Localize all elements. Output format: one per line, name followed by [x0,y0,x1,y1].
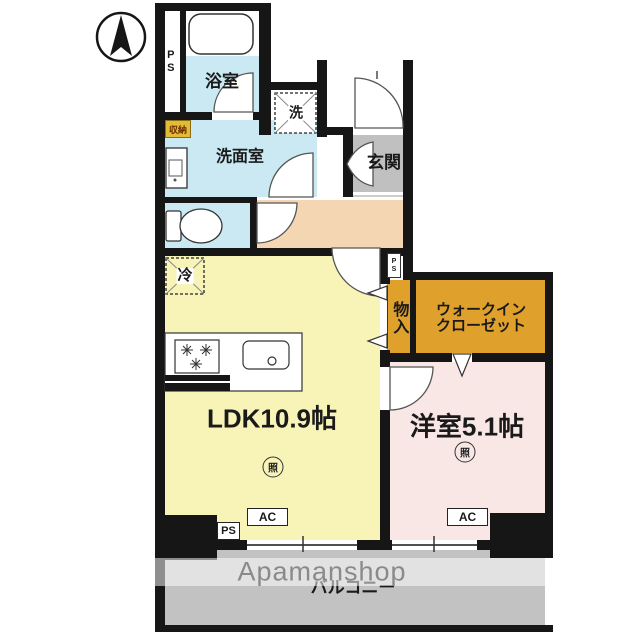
toilet [166,211,181,241]
north-arrow-icon [97,13,145,61]
washroom-label: 洗面室 [216,150,264,167]
washer-label: 洗 [288,106,304,121]
western-room-label: 洋室5.1帖 [410,413,524,440]
ps-shaft-label-top: PS [164,49,176,75]
floorplan-drawing [0,0,640,640]
western-room-light-symbol: 照 [455,442,476,463]
ldk-light-symbol: 照 [263,457,284,478]
storage-label: 物入 [390,301,407,335]
floorplan: PS 浴室 洗 収納 洗面室 玄関 冷 LDK10.9帖 照 ウォークイン クロ… [0,0,640,640]
entrance-label: 玄関 [367,154,401,172]
bathtub [189,14,253,54]
entrance-door [355,78,403,128]
ps-shaft-label-bottom: PS [217,522,240,540]
walkin-closet-label-line2: クローゼット [436,318,526,334]
bath-label: 浴室 [205,73,239,91]
walkin-closet-label-line1: ウォークイン [436,302,526,318]
ldk-room [165,256,380,540]
ac-label-ldk: AC [247,508,288,526]
fridge-label: 冷 [176,268,193,284]
ps-shaft-label-mid: PS [387,253,401,278]
kitchen-sink [243,341,289,369]
walkin-closet-label: ウォークイン クローゼット [436,302,526,334]
ac-label-western: AC [447,508,488,526]
stove [175,340,219,373]
small-closet-label: 収納 [165,120,191,138]
watermark-text: Apamanshop [237,557,406,588]
ldk-label: LDK10.9帖 [207,405,337,432]
